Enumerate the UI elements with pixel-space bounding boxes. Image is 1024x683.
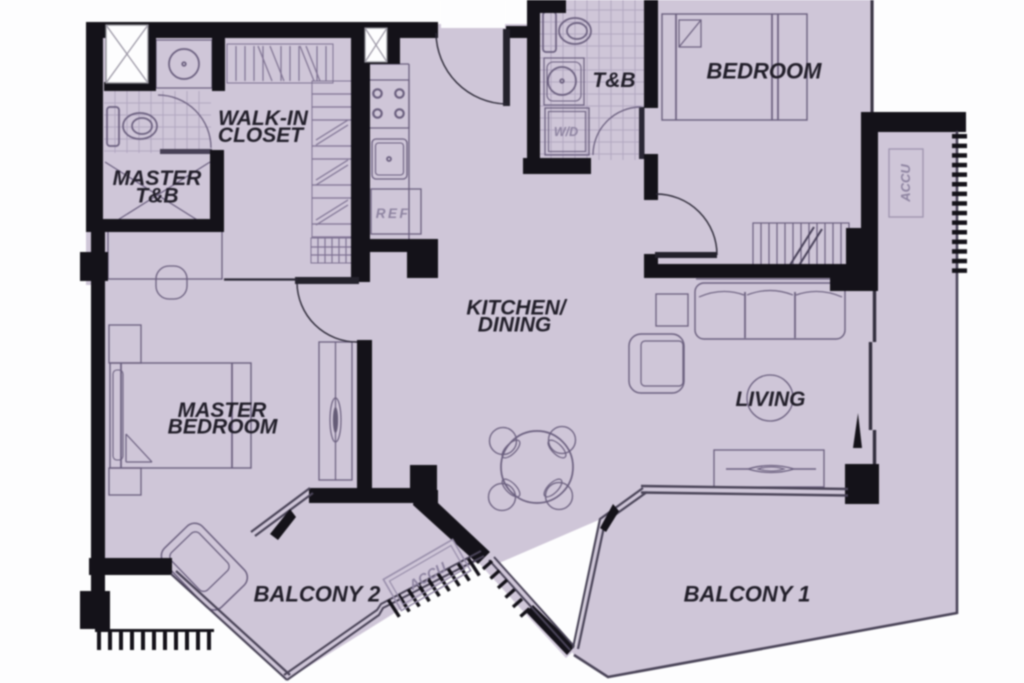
svg-text:ACCU: ACCU xyxy=(898,164,913,203)
svg-text:BEDROOM: BEDROOM xyxy=(168,416,278,439)
svg-text:LIVING: LIVING xyxy=(735,388,805,411)
svg-text:CLOSET: CLOSET xyxy=(218,124,305,147)
svg-text:W/D: W/D xyxy=(554,125,578,139)
svg-text:BEDROOM: BEDROOM xyxy=(707,59,823,84)
svg-text:BALCONY 2: BALCONY 2 xyxy=(254,582,381,607)
svg-text:T&B: T&B xyxy=(592,69,635,92)
svg-text:BALCONY 1: BALCONY 1 xyxy=(684,582,811,607)
svg-text:DINING: DINING xyxy=(478,314,552,337)
svg-text:T&B: T&B xyxy=(135,185,178,208)
svg-text:REF: REF xyxy=(376,206,411,221)
